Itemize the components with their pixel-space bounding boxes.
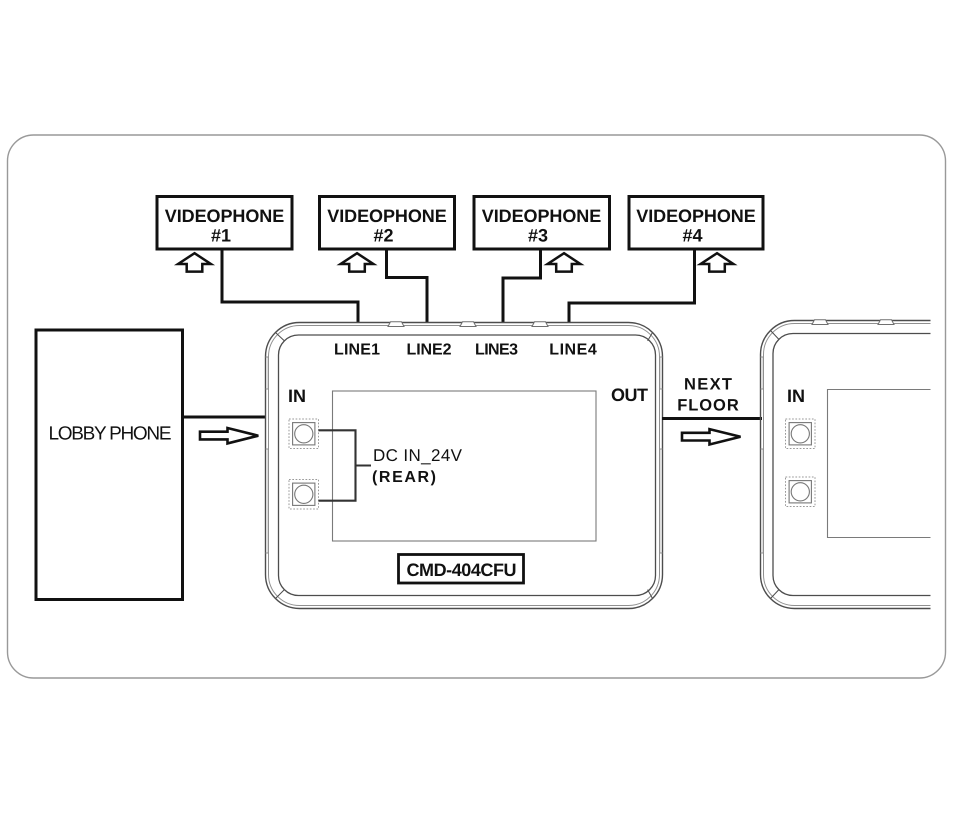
svg-text:LINE2: LINE2: [407, 342, 452, 359]
svg-text:CMD-404CFU: CMD-404CFU: [407, 560, 517, 580]
svg-text:VIDEOPHONE: VIDEOPHONE: [165, 206, 285, 226]
svg-text:#1: #1: [211, 226, 231, 246]
svg-text:NEXT: NEXT: [684, 376, 732, 394]
svg-text:IN: IN: [288, 386, 306, 406]
svg-text:OUT: OUT: [611, 385, 648, 405]
svg-text:(REAR): (REAR): [372, 469, 436, 486]
svg-text:#2: #2: [373, 226, 393, 246]
svg-text:VIDEOPHONE: VIDEOPHONE: [482, 206, 602, 226]
svg-text:LINE4: LINE4: [549, 342, 597, 359]
svg-text:LINE1: LINE1: [334, 342, 380, 359]
svg-text:#3: #3: [528, 226, 548, 246]
svg-text:#4: #4: [682, 226, 702, 246]
svg-text:VIDEOPHONE: VIDEOPHONE: [327, 206, 447, 226]
svg-text:VIDEOPHONE: VIDEOPHONE: [636, 206, 756, 226]
svg-text:FLOOR: FLOOR: [677, 396, 739, 414]
svg-text:IN: IN: [787, 386, 805, 406]
svg-text:LOBBY PHONE: LOBBY PHONE: [49, 424, 172, 445]
svg-text:DC IN_24V: DC IN_24V: [373, 446, 463, 465]
svg-text:LINE3: LINE3: [475, 342, 518, 359]
